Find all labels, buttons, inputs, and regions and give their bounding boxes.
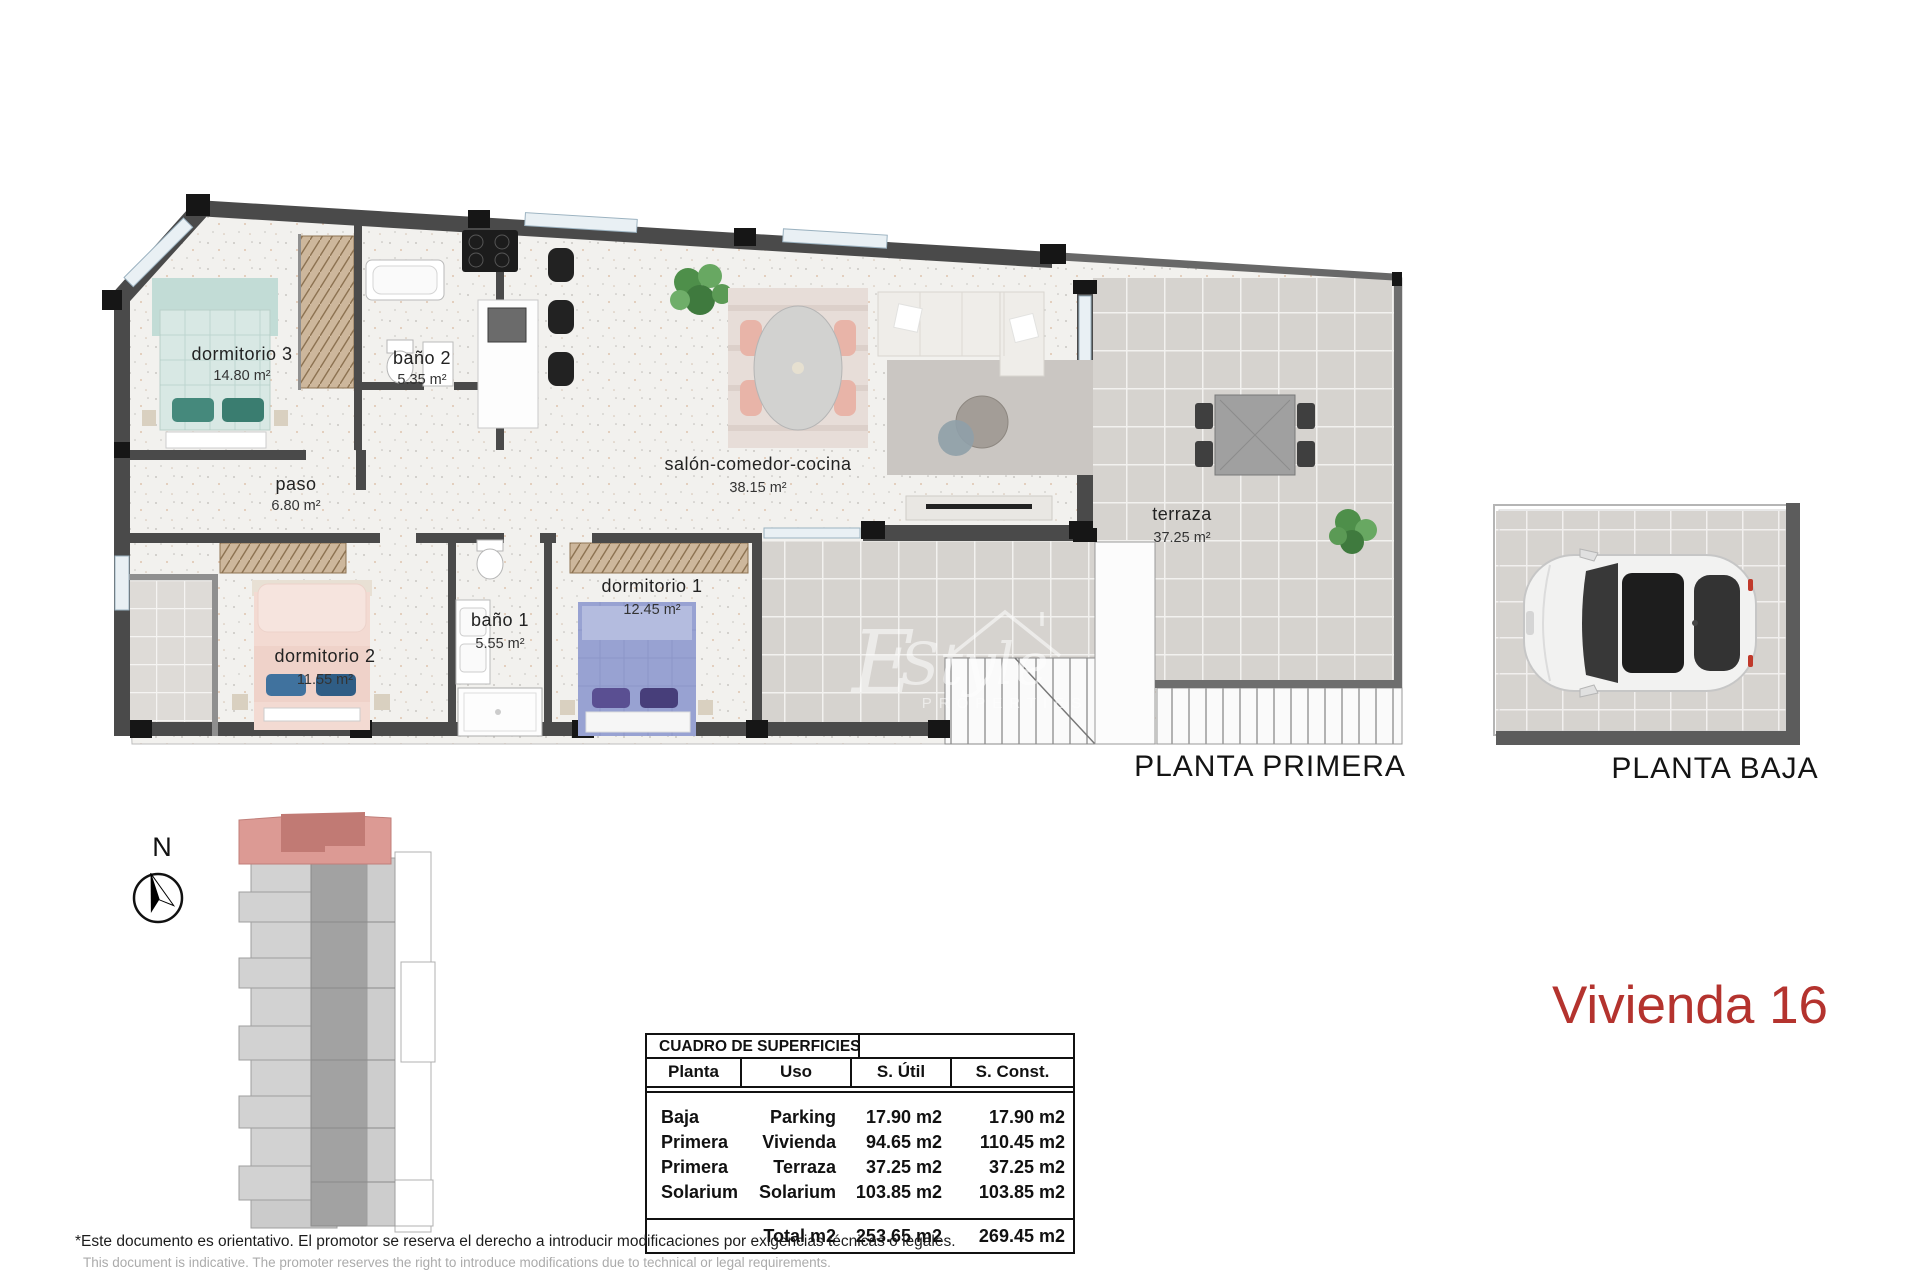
surface-table-body: Baja Parking 17.90 m2 17.90 m2 Primera V…	[647, 1091, 1073, 1215]
unit-title: Vivienda 16	[1552, 975, 1828, 1036]
coffee-table-icon	[938, 420, 974, 456]
compass: N	[118, 826, 198, 936]
dining-table-icon	[728, 288, 868, 448]
glass-door-icon	[764, 528, 860, 538]
floorplan-sheet: E Style PROPERTIES dormitorio 3 14.80 m²…	[0, 0, 1920, 1280]
column-header-sconst: S. Const.	[952, 1059, 1073, 1086]
closet-icon	[570, 543, 748, 573]
site-plan-highlighted-unit	[239, 812, 391, 864]
svg-text:12.45 m²: 12.45 m²	[623, 602, 680, 618]
side-balcony-floor	[118, 580, 214, 732]
room-label-bano2: baño 2	[393, 348, 451, 368]
closet-icon	[300, 236, 354, 388]
bed-icon	[560, 602, 713, 736]
chair-icon	[1195, 441, 1213, 467]
chair-icon	[1297, 403, 1315, 429]
room-label-terraza: terraza	[1152, 504, 1212, 524]
hob-icon	[462, 230, 518, 272]
svg-text:5.35 m²: 5.35 m²	[397, 372, 446, 388]
table-row: Baja Parking 17.90 m2 17.90 m2	[647, 1105, 1073, 1130]
garage-floorplan	[1490, 493, 1810, 755]
watermark-script: Style	[900, 630, 1049, 698]
room-label-dormitorio1: dormitorio 1	[601, 576, 702, 596]
garage-wall	[1786, 503, 1800, 737]
column-header-planta: Planta	[647, 1059, 742, 1086]
stool-icon	[548, 300, 574, 334]
surface-table-title: CUADRO DE SUPERFICIES	[659, 1038, 861, 1056]
site-plan-units	[239, 852, 435, 1232]
svg-text:6.80 m²: 6.80 m²	[271, 498, 320, 514]
disclaimer-es: *Este documento es orientativo. El promo…	[75, 1233, 956, 1251]
surface-table: CUADRO DE SUPERFICIES Planta Uso S. Útil…	[645, 1033, 1075, 1254]
room-label-bano1: baño 1	[471, 610, 529, 630]
table-row: Primera Terraza 37.25 m2 37.25 m2	[647, 1155, 1073, 1180]
chair-icon	[1297, 441, 1315, 467]
room-label-paso: paso	[275, 474, 316, 494]
compass-north-label: N	[152, 832, 172, 862]
total-const: 269.45 m2	[952, 1220, 1073, 1252]
svg-text:5.55 m²: 5.55 m²	[475, 636, 524, 652]
room-label-dormitorio3: dormitorio 3	[191, 344, 292, 364]
room-label-salon: salón-comedor-cocina	[664, 454, 852, 474]
room-label-dormitorio2: dormitorio 2	[274, 646, 375, 666]
site-plan	[225, 812, 445, 1242]
stair-landing	[1095, 542, 1155, 744]
stool-icon	[548, 248, 574, 282]
table-row: Primera Vivienda 94.65 m2 110.45 m2	[647, 1130, 1073, 1155]
plan-baja-caption: PLANTA BAJA	[1525, 752, 1905, 786]
disclaimer-en: This document is indicative. The promote…	[83, 1255, 831, 1270]
closet-icon	[220, 543, 346, 573]
watermark-sub: PROPERTIES	[922, 695, 1088, 712]
column-header-sutil: S. Útil	[852, 1059, 952, 1086]
window-icon	[115, 556, 129, 610]
table-row: Solarium Solarium 103.85 m2 103.85 m2	[647, 1180, 1073, 1205]
plan-primera-caption: PLANTA PRIMERA	[1080, 750, 1460, 784]
chair-icon	[1195, 403, 1213, 429]
garage-wall	[1496, 731, 1800, 745]
svg-text:11.55 m²: 11.55 m²	[297, 672, 353, 688]
exterior-stair	[1157, 688, 1402, 744]
svg-text:14.80 m²: 14.80 m²	[213, 368, 270, 384]
car-icon	[1524, 549, 1756, 697]
svg-text:38.15 m²: 38.15 m²	[729, 480, 786, 496]
column-header-uso: Uso	[742, 1059, 852, 1086]
main-floorplan: E Style PROPERTIES dormitorio 3 14.80 m²…	[100, 160, 1420, 800]
stool-icon	[548, 352, 574, 386]
svg-text:37.25 m²: 37.25 m²	[1153, 530, 1210, 546]
surface-table-header: Planta Uso S. Útil S. Const.	[647, 1059, 1073, 1088]
